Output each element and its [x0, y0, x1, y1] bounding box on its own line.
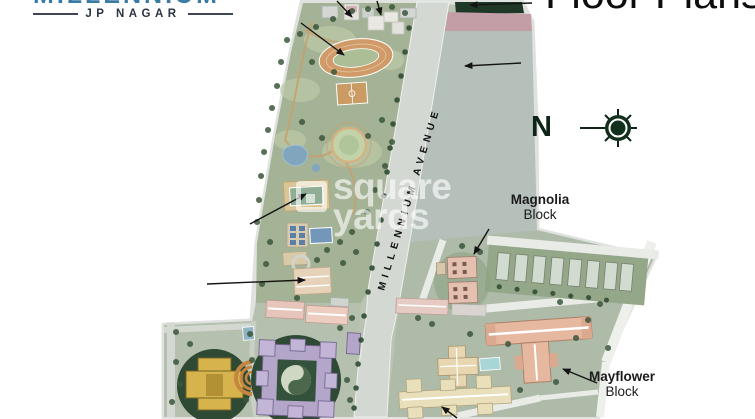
magnolia-type: Block — [498, 207, 582, 222]
logo-dash-left — [33, 13, 78, 15]
pink-band — [440, 12, 532, 31]
page-title: Floor Plans — [545, 0, 755, 19]
brand-subtitle: JP NAGAR — [78, 8, 187, 20]
mayflower-name: Mayflower — [576, 369, 668, 384]
watermark-square-icon — [296, 181, 327, 212]
brand-logo: MILLENNIUM JP NAGAR — [33, 0, 233, 20]
mayflower-block-label: Mayflower Block — [576, 369, 668, 399]
sports-court — [336, 82, 367, 105]
compass-rose-icon — [554, 103, 646, 151]
lavender-ring-block — [255, 338, 339, 419]
brand-subtitle-row: JP NAGAR — [33, 8, 233, 20]
north-label: N — [531, 111, 552, 144]
small-pond — [312, 164, 320, 172]
logo-dash-right — [188, 13, 233, 15]
mayflower-type: Block — [576, 384, 668, 399]
amenity-building — [293, 267, 331, 295]
brand-name: MILLENNIUM — [33, 0, 233, 8]
watermark: square yards — [296, 172, 451, 232]
mayflower-pool — [480, 357, 501, 370]
watermark-text: square yards — [333, 172, 451, 232]
compass: N — [531, 103, 646, 151]
magnolia-name: Magnolia — [498, 192, 582, 207]
watermark-square-dot — [306, 194, 315, 203]
pond — [283, 145, 308, 165]
floor-plan-page: MILLENNIUM AVENUE MILLENNIUM JP NAGAR Fl… — [0, 0, 755, 419]
magnolia-block-label: Magnolia Block — [498, 192, 582, 222]
lavender-annex — [346, 333, 360, 355]
circular-lawn — [332, 128, 366, 162]
